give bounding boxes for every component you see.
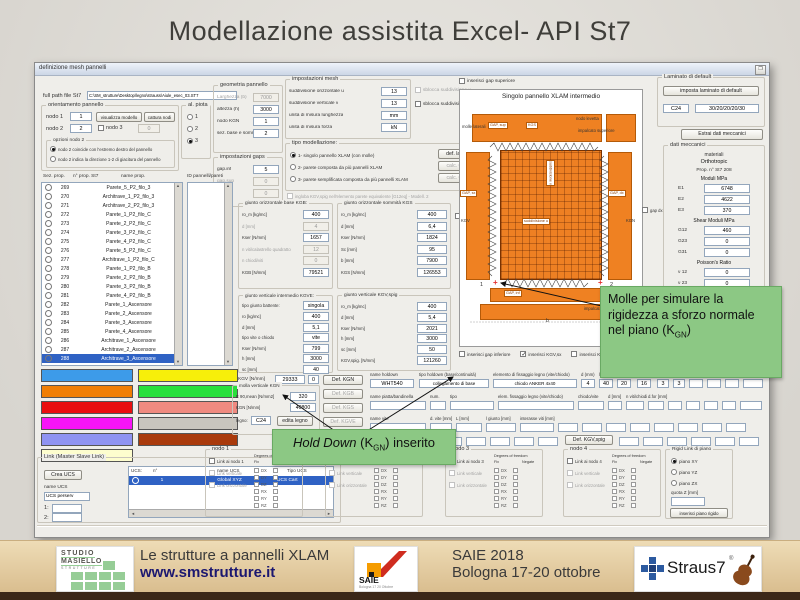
negate-checkbox[interactable] — [513, 489, 518, 494]
hd-tipo-input[interactable]: collegamento di base — [419, 379, 489, 388]
field-input[interactable]: 7900 — [417, 256, 447, 265]
dof-row[interactable]: RZ — [494, 502, 518, 509]
hd-nviti-input[interactable]: 20 — [617, 379, 631, 388]
props-scrollbar[interactable] — [174, 183, 182, 365]
negate-checkbox[interactable] — [273, 475, 278, 480]
dof-row[interactable]: DX — [254, 467, 278, 474]
def-kgn-button[interactable]: Def. KGN — [323, 375, 363, 385]
negate-checkbox[interactable] — [393, 482, 398, 487]
hd2-input[interactable] — [578, 401, 604, 410]
opzione-nodo2-radio-2[interactable]: nodo 2 indica la direzione 1-2 di giacit… — [50, 156, 160, 162]
hd2-input[interactable] — [450, 401, 494, 410]
edita-legno-button[interactable]: edita legno — [277, 416, 313, 426]
hd4-input[interactable] — [619, 437, 639, 446]
prop-radio[interactable] — [45, 346, 52, 353]
field-input[interactable]: 3000 — [253, 105, 279, 114]
kgs-field: ro_m [kg/mc] 400 — [341, 210, 447, 219]
dof-label: RX — [261, 489, 271, 494]
field1-input[interactable] — [52, 504, 82, 513]
field-input[interactable]: 4622 — [704, 195, 750, 204]
prop-radio[interactable] — [45, 247, 52, 254]
field-label: E2 — [678, 197, 684, 202]
field-input[interactable]: 5,1 — [303, 323, 329, 332]
prop-row[interactable]: 271 Architrave_2_P2_filo_3 — [42, 201, 182, 210]
nodo2-input[interactable]: 2 — [70, 124, 92, 133]
action-button[interactable] — [138, 401, 238, 414]
crea-ucs-button[interactable]: Crea UCS — [44, 470, 82, 480]
negate-checkbox[interactable] — [273, 496, 278, 501]
stratigrafia-input[interactable]: 30/20/20/20/30 — [695, 104, 759, 113]
field-label: G31 — [678, 250, 687, 255]
field-input[interactable]: 121260 — [417, 356, 447, 365]
ucs-radio[interactable] — [132, 477, 139, 484]
fix-checkbox[interactable] — [612, 482, 617, 487]
prop-name: Parete_4_Ascensore — [75, 329, 182, 335]
negate-checkbox[interactable] — [393, 468, 398, 473]
fix-checkbox[interactable] — [374, 503, 379, 508]
callout-text: (K — [357, 435, 374, 450]
nodo1-input[interactable]: 1 — [70, 112, 92, 121]
field-input[interactable]: 400 — [303, 210, 329, 219]
ids-listbox[interactable] — [187, 182, 233, 366]
action-button[interactable] — [41, 385, 133, 398]
prop-radio[interactable] — [45, 184, 52, 191]
dof-row[interactable]: DY — [612, 474, 636, 481]
nodo2-label: nodo 2 — [46, 126, 63, 132]
ingloba-checkbox[interactable]: ingloba KGV,spig nell'elemento parete eq… — [287, 193, 428, 199]
al-piota-radio-1[interactable]: 1 — [187, 114, 198, 120]
fix-checkbox[interactable] — [254, 475, 259, 480]
field-input[interactable]: 2 — [253, 129, 279, 138]
link-verticale-checkbox[interactable]: Link verticale — [209, 470, 242, 476]
link-nodo1-checkbox[interactable]: Link ai nodo 1 — [209, 458, 244, 464]
negate-checkbox[interactable] — [631, 496, 636, 501]
fix-checkbox[interactable] — [254, 489, 259, 494]
piano-xy-radio[interactable]: piano XY — [671, 458, 698, 464]
link-orizzontale-checkbox[interactable]: Link orizzontale — [567, 482, 605, 488]
prop-row[interactable]: 283 Parete_2_Ascensore — [42, 309, 182, 318]
dof-row[interactable]: RY — [374, 495, 398, 502]
hd-tipo-label: tipo holdown (base/continuità) — [419, 372, 476, 377]
hd-l-input[interactable]: 40 — [599, 379, 613, 388]
dof-row[interactable]: DY — [374, 474, 398, 481]
hd2-input[interactable] — [430, 401, 446, 410]
field-input[interactable]: 4 — [303, 222, 329, 231]
hd3-input[interactable] — [456, 423, 482, 432]
prop-row[interactable]: 288 Architrave_3_Ascensore — [42, 354, 182, 363]
dof-row[interactable]: DZ — [612, 481, 636, 488]
classe-input[interactable]: C24 — [663, 104, 689, 113]
window-maximize-button[interactable]: ❐ — [755, 65, 766, 75]
def-kgve-button[interactable]: Def. KGVE — [323, 417, 363, 427]
negate-checkbox[interactable] — [631, 482, 636, 487]
field-label: suddivisione orizzontale u — [289, 89, 344, 94]
field-input[interactable]: 79521 — [303, 268, 329, 277]
negate-checkbox[interactable] — [393, 496, 398, 501]
field-input[interactable]: 126553 — [417, 268, 447, 277]
legno-input[interactable]: C24 — [251, 416, 271, 425]
hd2-input[interactable] — [668, 401, 682, 410]
fix-checkbox[interactable] — [374, 482, 379, 487]
fix-checkbox[interactable] — [494, 475, 499, 480]
fix-checkbox[interactable] — [254, 496, 259, 501]
field-input[interactable]: kN — [381, 123, 407, 132]
kgv-label: KGV — [461, 218, 470, 223]
hd3-input[interactable] — [726, 423, 746, 432]
inserisci-checkbox[interactable]: inserisci gap inferiore — [459, 351, 510, 357]
field-input[interactable]: 400 — [417, 302, 447, 311]
field-input[interactable]: 799 — [303, 344, 329, 353]
dof-row[interactable]: RZ — [254, 502, 278, 509]
fix-checkbox[interactable] — [612, 496, 617, 501]
piano-yz-radio[interactable]: piano YZ — [671, 469, 697, 475]
quota-input[interactable] — [671, 497, 705, 506]
hd3-input[interactable] — [520, 423, 554, 432]
action-button[interactable] — [138, 433, 238, 446]
action-button[interactable] — [41, 369, 133, 382]
field-input[interactable]: 5 — [253, 165, 279, 174]
action-button[interactable] — [138, 417, 238, 430]
field-input[interactable]: 370 — [704, 206, 750, 215]
dof-label: DX — [381, 468, 391, 473]
hd-extra-input[interactable] — [689, 379, 703, 388]
prop-row[interactable]: 276 Parete_5_P2_filo_C — [42, 246, 182, 255]
prop-row[interactable]: 274 Parete_3_P2_filo_C — [42, 228, 182, 237]
dof-row[interactable]: RZ — [612, 502, 636, 509]
fix-checkbox[interactable] — [254, 468, 259, 473]
negate-checkbox[interactable] — [393, 475, 398, 480]
def-kgvspig-button[interactable]: Def. KGV,spig — [565, 435, 613, 445]
fix-checkbox[interactable] — [494, 503, 499, 508]
prop-name: Parete_5_P2_filo_3 — [75, 185, 182, 191]
field-input[interactable]: 0 — [253, 177, 279, 186]
field-input[interactable]: 13 — [381, 87, 407, 96]
fix-checkbox[interactable] — [612, 475, 617, 480]
prop-radio[interactable] — [45, 337, 52, 344]
fix-checkbox[interactable] — [612, 503, 617, 508]
kgv-input-2[interactable]: 0 — [308, 375, 319, 384]
hd3-input[interactable] — [678, 423, 698, 432]
fix-checkbox[interactable] — [494, 489, 499, 494]
prop-radio[interactable] — [45, 274, 52, 281]
negate-checkbox[interactable] — [513, 496, 518, 501]
fix-checkbox[interactable] — [254, 503, 259, 508]
hd4-input[interactable] — [514, 437, 534, 446]
prop-radio[interactable] — [45, 292, 52, 299]
prop-row[interactable]: 287 Architrave_2_Ascensore — [42, 345, 182, 354]
hd3-input[interactable] — [702, 423, 722, 432]
link-verticale-checkbox[interactable]: Link verticale — [449, 470, 482, 476]
hd2-input[interactable] — [498, 401, 574, 410]
field-input[interactable]: 50 — [417, 345, 447, 354]
field-input[interactable]: 320 — [290, 392, 316, 401]
fix-checkbox[interactable] — [254, 482, 259, 487]
link-orizzontale-checkbox[interactable]: Link orizzontale — [209, 482, 247, 488]
prop-radio[interactable] — [45, 193, 52, 200]
fix-checkbox[interactable] — [494, 468, 499, 473]
dof-row[interactable]: DX — [374, 467, 398, 474]
prop-radio[interactable] — [45, 265, 52, 272]
dof-row[interactable]: DX — [612, 467, 636, 474]
hd-d-input[interactable]: 4 — [581, 379, 595, 388]
dof-row[interactable]: RY — [612, 495, 636, 502]
estrai-dati-button[interactable]: Estrai dati meccanici — [681, 129, 763, 140]
field-input[interactable]: 0 — [253, 189, 279, 198]
prop-row[interactable]: 270 Architrave_1_P2_filo_3 — [42, 192, 182, 201]
field-input[interactable]: 3000 — [303, 354, 329, 363]
negate-checkbox[interactable] — [273, 489, 278, 494]
hd2-input[interactable] — [370, 401, 426, 410]
field-input[interactable]: vite — [303, 333, 329, 342]
prop-radio[interactable] — [45, 202, 52, 209]
hd2-input[interactable] — [626, 401, 644, 410]
field-input[interactable]: 40800 — [290, 403, 316, 412]
link-nodo4-checkbox[interactable]: Link ai nodo 4 — [567, 458, 602, 464]
field-input[interactable]: mm — [381, 111, 407, 120]
fix-checkbox[interactable] — [374, 468, 379, 473]
field-input[interactable]: 7000 — [253, 93, 279, 102]
link-orizzontale-checkbox[interactable]: Link orizzontale — [449, 482, 487, 488]
action-button[interactable] — [41, 401, 133, 414]
negate-checkbox[interactable] — [273, 468, 278, 473]
laminato-group: Laminato di default imposta laminato di … — [657, 77, 765, 127]
negate-checkbox[interactable] — [513, 503, 518, 508]
dof-row[interactable]: DZ — [374, 481, 398, 488]
hd4-input[interactable] — [739, 437, 759, 446]
action-button[interactable] — [138, 385, 238, 398]
prop-radio[interactable] — [45, 220, 52, 227]
radio-dot — [290, 164, 296, 170]
field-input[interactable]: 1 — [253, 117, 279, 126]
hd-extra-input[interactable] — [725, 379, 739, 388]
prop-row[interactable]: 282 Parete_1_Ascensore — [42, 300, 182, 309]
negate-checkbox[interactable] — [513, 475, 518, 480]
hd-t-input[interactable]: 3 — [657, 379, 669, 388]
modellazione-radio-1[interactable]: 1- singolo pannello XLAM (con molle) — [290, 152, 374, 158]
field-label: G23 — [678, 239, 687, 244]
field-label: KGB [N/mm] — [242, 270, 266, 275]
n-th: n° — [153, 468, 157, 473]
fix-checkbox[interactable] — [374, 496, 379, 501]
field-input[interactable]: 6,4 — [417, 222, 447, 231]
prop-radio[interactable] — [45, 310, 52, 317]
prop-row[interactable]: 279 Parete_2_P2_filo_B — [42, 273, 182, 282]
hd3-input[interactable] — [486, 423, 516, 432]
hd2-input[interactable] — [740, 401, 762, 410]
hd-name-input[interactable]: WHT540 — [370, 379, 414, 388]
field-input[interactable]: 3000 — [417, 334, 447, 343]
hd4-input[interactable] — [490, 437, 510, 446]
kgve-field: d [mm] 5,1 — [242, 323, 329, 332]
dof-row[interactable]: RY — [494, 495, 518, 502]
field-input[interactable]: 12 — [303, 245, 329, 254]
dof-row[interactable]: DX — [494, 467, 518, 474]
visualizza-modello-button[interactable]: visualizza modello — [96, 112, 142, 122]
link-verticale-checkbox[interactable]: Link verticale — [567, 470, 600, 476]
imposta-laminato-button[interactable]: imposta laminato di default — [663, 86, 759, 96]
negate-checkbox[interactable] — [631, 475, 636, 480]
field-input[interactable]: 40 — [303, 365, 329, 374]
dof-negate: Negate — [640, 460, 652, 464]
prop-row[interactable]: 285 Parete_4_Ascensore — [42, 327, 182, 336]
prop-radio[interactable] — [45, 256, 52, 263]
gap-superiore-checkbox[interactable]: inserisci gap superiore — [459, 78, 515, 84]
hd4-input[interactable] — [715, 437, 735, 446]
piano-zx-radio[interactable]: piano ZX — [671, 480, 697, 486]
negate-checkbox[interactable] — [513, 482, 518, 487]
hd-nfori-input[interactable]: 3 — [673, 379, 685, 388]
studio-masiello-logo: STUDIO MASIELLO STRUTTURE — [56, 546, 134, 592]
field-input[interactable]: 460 — [704, 226, 750, 235]
dof-label: DZ — [381, 482, 391, 487]
prop-row[interactable]: 272 Parete_1_P2_filo_C — [42, 210, 182, 219]
hd3-input[interactable] — [558, 423, 578, 432]
hd4-input[interactable] — [691, 437, 711, 446]
fix-checkbox[interactable] — [494, 482, 499, 487]
prop-radio[interactable] — [45, 229, 52, 236]
nodo3-checkbox[interactable]: nodo 3 — [98, 125, 123, 131]
opzione-nodo2-radio-1[interactable]: nodo 2 coincide con l'estremo destro del… — [50, 146, 152, 152]
field-input[interactable]: 13 — [381, 99, 407, 108]
link-orizzontale-checkbox[interactable]: Link orizzontale — [329, 482, 367, 488]
field-input[interactable]: 6748 — [704, 184, 750, 193]
prop-row[interactable]: 280 Parete_3_P2_filo_B — [42, 282, 182, 291]
hd2-input[interactable] — [648, 401, 664, 410]
hd-extra-input[interactable] — [707, 379, 721, 388]
negate-checkbox[interactable] — [393, 503, 398, 508]
dof-row[interactable]: DY — [494, 474, 518, 481]
field-input[interactable]: 0 — [704, 268, 750, 277]
props-listbox[interactable]: 269 Parete_5_P2_filo_3 270 Architrave_1_… — [41, 182, 183, 366]
hd-dfor-input[interactable]: 16 — [637, 379, 651, 388]
smstrutture-link[interactable]: www.smstrutture.it — [140, 564, 329, 581]
negate-checkbox[interactable] — [631, 489, 636, 494]
prop-radio[interactable] — [45, 301, 52, 308]
prop-row[interactable]: 273 Parete_2_P2_filo_C — [42, 219, 182, 228]
dof-row[interactable]: RX — [254, 488, 278, 495]
def-kgs-button[interactable]: Def. KGS — [323, 403, 363, 413]
link-verticale-checkbox[interactable]: Link verticale — [329, 470, 362, 476]
dof-row[interactable]: RX — [374, 488, 398, 495]
negate-checkbox[interactable] — [631, 468, 636, 473]
nodo3-input[interactable]: 0 — [138, 124, 160, 133]
hd4-input[interactable] — [643, 437, 663, 446]
prop-row[interactable]: 275 Parete_4_P2_filo_C — [42, 237, 182, 246]
al-piota-radio-3[interactable]: 3 — [187, 138, 198, 144]
negate-checkbox[interactable] — [273, 482, 278, 487]
fix-checkbox[interactable] — [612, 489, 617, 494]
prop-radio[interactable] — [45, 238, 52, 245]
fix-checkbox[interactable] — [612, 468, 617, 473]
prop-number: 270 — [55, 194, 75, 200]
fix-checkbox[interactable] — [374, 475, 379, 480]
ids-scrollbar[interactable] — [224, 183, 232, 365]
hd2-input[interactable] — [608, 401, 622, 410]
cattura-nodi-button[interactable]: cattura nodi — [144, 112, 175, 122]
hd-extra-input[interactable] — [743, 379, 763, 388]
dof-row[interactable]: RZ — [374, 502, 398, 509]
hd3-input[interactable] — [630, 423, 650, 432]
prop-radio[interactable] — [45, 319, 52, 326]
inserisci-checkbox[interactable]: inserisci KGV,sx — [520, 351, 561, 357]
hd2-input[interactable] — [686, 401, 700, 410]
field-input[interactable]: 0 — [704, 237, 750, 246]
negate-checkbox[interactable] — [393, 489, 398, 494]
field-input[interactable]: 0 — [303, 256, 329, 265]
action-button[interactable] — [41, 433, 133, 446]
prop-row[interactable]: 278 Parete_1_P2_filo_B — [42, 264, 182, 273]
prop-radio[interactable] — [45, 355, 52, 362]
gap-dx-checkbox[interactable]: gap dx — [642, 207, 663, 213]
dof-row[interactable]: RY — [254, 495, 278, 502]
dof-row[interactable]: RX — [494, 488, 518, 495]
prop-radio[interactable] — [45, 328, 52, 335]
name-ucs-input[interactable]: UCS perserv — [44, 492, 90, 501]
fix-checkbox[interactable] — [374, 489, 379, 494]
modellazione-radio-2[interactable]: 2- parete composta da più pannelli XLAM — [290, 164, 382, 170]
prop-row[interactable]: 281 Parete_4_P2_filo_B — [42, 291, 182, 300]
prop-row[interactable]: 286 Architrave_1_Ascensore — [42, 336, 182, 345]
hd3-input[interactable] — [606, 423, 626, 432]
prop-row[interactable]: 284 Parete_3_Ascensore — [42, 318, 182, 327]
action-button[interactable] — [138, 369, 238, 382]
field-label: altezza (h) — [217, 107, 239, 112]
field-input[interactable]: 1824 — [417, 233, 447, 242]
hd4-input[interactable] — [667, 437, 687, 446]
dof-row[interactable]: DY — [254, 474, 278, 481]
action-button[interactable] — [41, 417, 133, 430]
radio-label: 2- parete composta da più pannelli XLAM — [298, 165, 382, 170]
field-input[interactable]: singola — [303, 301, 329, 310]
hd4-input[interactable] — [538, 437, 558, 446]
inserisci-piano-rigido-button[interactable]: inserisci piano rigido — [670, 508, 728, 518]
dof-row[interactable]: DZ — [254, 481, 278, 488]
dof-row[interactable]: RX — [612, 488, 636, 495]
kgs-title: giunto orizzontale sommità KGS — [342, 200, 415, 207]
checkbox-label: Link orizzontale — [575, 483, 605, 488]
field2-input[interactable] — [52, 513, 82, 522]
prop-name: Parete_4_P2_filo_C — [75, 239, 182, 245]
prop-radio[interactable] — [45, 283, 52, 290]
field-input[interactable]: 5,4 — [417, 313, 447, 322]
hd3-input[interactable] — [582, 423, 602, 432]
field-input[interactable]: 400 — [303, 312, 329, 321]
field-input[interactable]: 1657 — [303, 233, 329, 242]
field-input[interactable]: 2021 — [417, 324, 447, 333]
negate-checkbox[interactable] — [513, 468, 518, 473]
hd2-input[interactable] — [722, 401, 736, 410]
negate-checkbox[interactable] — [631, 503, 636, 508]
def-kgb-button[interactable]: Def. KGB — [323, 389, 363, 399]
dof-row[interactable]: DZ — [494, 481, 518, 488]
hd-elem-input[interactable]: chiodo ANKER 4x40 — [493, 379, 577, 388]
modellazione-radio-3[interactable]: 3- parete semplificata composta da più p… — [290, 176, 408, 182]
field-input[interactable]: 0 — [704, 248, 750, 257]
window-titlebar[interactable]: definizione mesh pannelli ❐ — [35, 63, 769, 76]
field-input[interactable]: 95 — [417, 245, 447, 254]
prop-row[interactable]: 269 Parete_5_P2_filo_3 — [42, 183, 182, 192]
hd3-input[interactable] — [654, 423, 674, 432]
hd4-input[interactable] — [466, 437, 486, 446]
field-input[interactable]: 400 — [417, 210, 447, 219]
prop-name: Architrave_2_Ascensore — [75, 347, 182, 353]
prop-radio[interactable] — [45, 211, 52, 218]
prop-row[interactable]: 277 Architrave_1_P2_filo_C — [42, 255, 182, 264]
negate-checkbox[interactable] — [273, 503, 278, 508]
hd2-input[interactable] — [704, 401, 718, 410]
al-piota-radio-2[interactable]: 2 — [187, 126, 198, 132]
fix-checkbox[interactable] — [494, 496, 499, 501]
